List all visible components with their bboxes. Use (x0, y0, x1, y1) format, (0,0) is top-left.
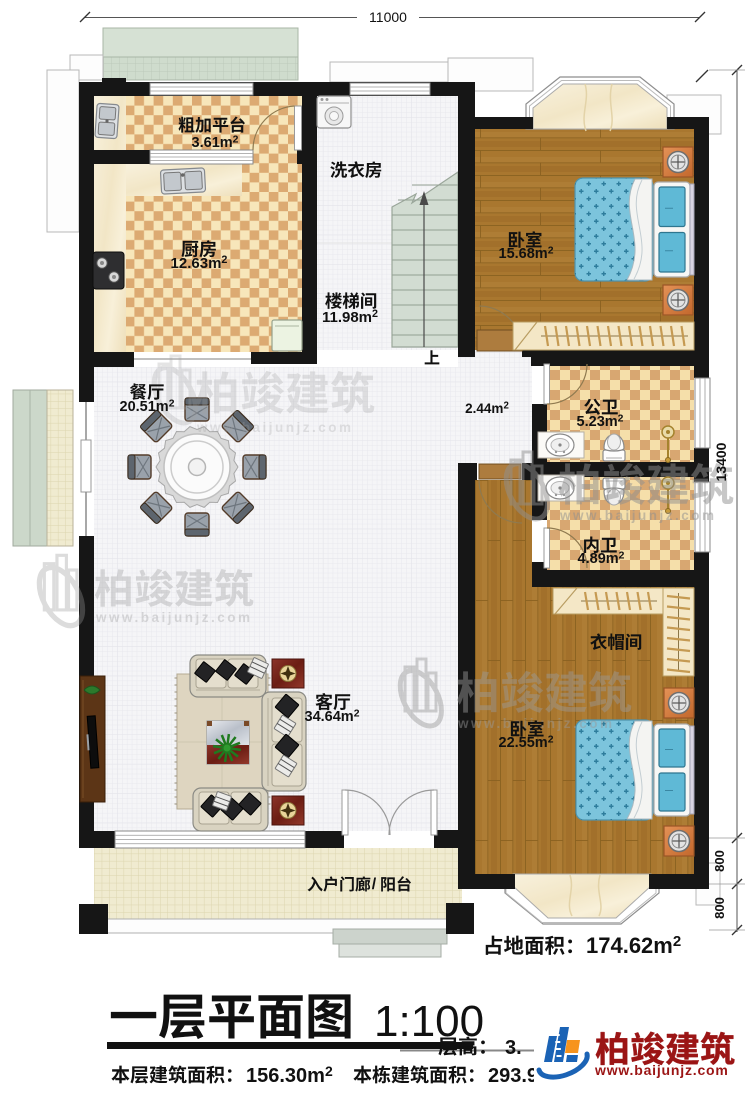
svg-text:/: / (372, 876, 377, 893)
svg-text:3.61m2: 3.61m2 (192, 134, 239, 151)
svg-text:www.baijunjz.com: www.baijunjz.com (196, 420, 354, 435)
svg-text:www.baijunjz.com: www.baijunjz.com (95, 610, 253, 625)
svg-text:800: 800 (712, 897, 727, 919)
svg-text:20.51m2: 20.51m2 (120, 398, 175, 415)
svg-text:3.: 3. (505, 1037, 522, 1059)
svg-text:11000: 11000 (369, 9, 407, 25)
svg-text:13400: 13400 (713, 442, 729, 481)
svg-text:www.baijunjz.com: www.baijunjz.com (559, 508, 717, 523)
svg-text:22.55m2: 22.55m2 (499, 734, 554, 751)
svg-text:5.23m2: 5.23m2 (577, 413, 624, 430)
svg-text:156.30m2: 156.30m2 (246, 1063, 333, 1087)
svg-text:174.62m2: 174.62m2 (586, 933, 681, 958)
svg-text:12.63m2: 12.63m2 (171, 254, 228, 272)
svg-text:15.68m2: 15.68m2 (499, 245, 554, 262)
svg-text:4.89m2: 4.89m2 (578, 550, 625, 567)
svg-text:11.98m2: 11.98m2 (322, 308, 378, 326)
svg-text:34.64m2: 34.64m2 (305, 708, 360, 725)
svg-text:800: 800 (712, 850, 727, 872)
svg-text:2.44m2: 2.44m2 (465, 401, 509, 416)
svg-text:www.baijunjz.com: www.baijunjz.com (594, 1062, 729, 1078)
